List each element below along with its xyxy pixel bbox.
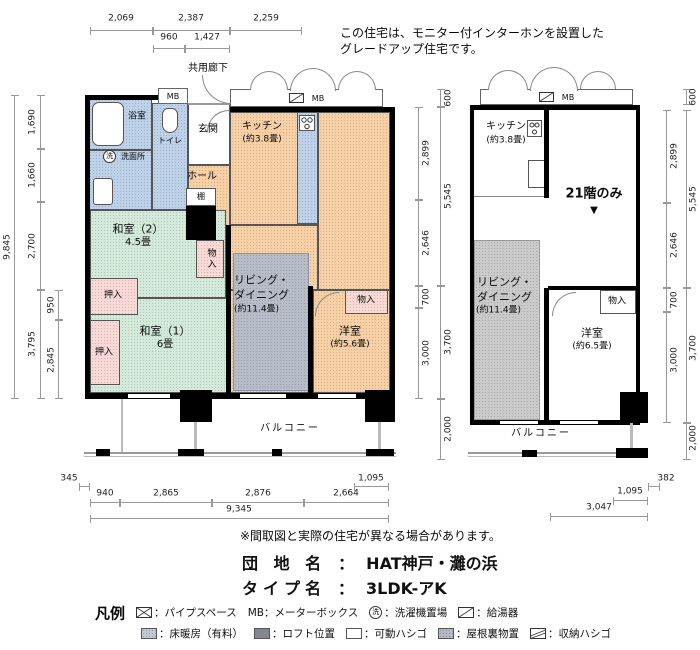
toilet-label: トイレ xyxy=(158,137,182,145)
window xyxy=(500,421,538,424)
storage-western-label: 物入 xyxy=(357,297,375,306)
western-label-left: 洋室 xyxy=(339,326,361,337)
dim-line xyxy=(418,200,419,286)
dim-right-4: 3,000 xyxy=(671,347,680,373)
dim-mid-o2: 3,700 xyxy=(445,329,454,355)
pipe-space-icon xyxy=(539,92,554,102)
wall xyxy=(470,420,640,425)
dim-line xyxy=(304,502,389,503)
dim-line xyxy=(120,502,212,503)
pipe-space-icon xyxy=(289,93,304,103)
wall xyxy=(85,95,90,399)
meter-box-strip-right: MB xyxy=(480,89,633,105)
dim-bl-4: 2,664 xyxy=(333,490,359,499)
storage-ladder-icon xyxy=(530,628,546,639)
dim-line xyxy=(648,486,660,487)
dim-line xyxy=(14,95,15,399)
dim-line xyxy=(90,502,120,503)
dim-line xyxy=(212,502,304,503)
dim-br-sub: 1,095 xyxy=(617,488,643,497)
disclaimer-note: ※間取図と実際の住宅が異なる場合があります。 xyxy=(240,530,501,542)
dim-mid-3: 700 xyxy=(423,288,432,305)
washer-circle-icon: 洗 xyxy=(103,150,116,163)
door-arc xyxy=(580,71,616,89)
hall-label: ホール xyxy=(187,172,217,182)
storage-label-right: 物入 xyxy=(608,298,626,307)
dim-top-4: 960 xyxy=(160,34,177,43)
kitchen-counter-right xyxy=(528,160,545,188)
wall xyxy=(390,112,395,399)
legend-item-pipe-space: ：パイプスペース xyxy=(136,605,237,620)
legend-item-meter-box: MB：メーターボックス xyxy=(248,605,358,620)
bath-label: 浴室 xyxy=(128,113,146,122)
dim-mid-2: 2,646 xyxy=(423,230,432,256)
kitchen-label-right: キッチン xyxy=(486,122,526,132)
type-name-separator: ： xyxy=(338,575,354,599)
legend-item-movable-ladder: ：可動ハシゴ xyxy=(346,626,427,641)
wall xyxy=(308,286,313,395)
estate-name-separator: ： xyxy=(338,550,354,574)
rail-block xyxy=(178,449,204,456)
floor-heating-swatch-icon xyxy=(141,628,157,639)
kitchen-size-left: (約3.8畳) xyxy=(242,136,281,145)
type-name-label: タイプ名 xyxy=(242,575,326,599)
upgrade-note-line1: この住宅は、モニター付インターホンを設置した xyxy=(340,27,604,39)
stove-icon xyxy=(299,115,315,131)
dim-line xyxy=(40,202,41,290)
legend-item-attic-storage: ：屋根裏物置 xyxy=(438,626,519,641)
window xyxy=(560,421,598,424)
dim-line xyxy=(440,399,441,460)
door-arc xyxy=(290,68,336,91)
meter-box-small: MB xyxy=(158,88,188,104)
dim-line xyxy=(686,110,687,288)
legend-item-washer: 洗 ：洗濯機置場 xyxy=(369,605,447,620)
legend-item-floor-heating: ：床暖房（有料） xyxy=(141,626,243,641)
dim-bl-3: 2,876 xyxy=(245,490,271,499)
duct-shaft xyxy=(186,206,216,240)
dim-mid-mb: 600 xyxy=(445,89,454,106)
pillar xyxy=(620,392,648,423)
dim-top-2: 2,387 xyxy=(178,15,204,24)
door-arc xyxy=(488,70,528,90)
kitchen-size-right: (約3.8畳) xyxy=(486,137,525,146)
dim-br-offset: 382 xyxy=(657,475,674,484)
dim-bl-2: 2,865 xyxy=(153,490,179,499)
dim-mid-balcony: 2,000 xyxy=(445,416,454,442)
dim-left-sub1: 950 xyxy=(48,296,57,313)
pillar xyxy=(180,390,212,422)
dim-left-2: 1,660 xyxy=(29,162,38,188)
dim-line xyxy=(354,486,389,487)
washitsu1-label: 和室（1） xyxy=(140,326,191,337)
washer-space-icon xyxy=(93,178,113,205)
door-arc xyxy=(530,67,578,91)
dim-line xyxy=(666,110,667,203)
balcony-rail xyxy=(84,452,396,454)
floor-note-marker: ▼ xyxy=(590,206,598,216)
wall xyxy=(470,105,474,425)
western-label-right: 洋室 xyxy=(581,328,603,339)
wall xyxy=(226,225,231,395)
door-arc xyxy=(338,71,376,90)
dim-line xyxy=(666,312,667,423)
dim-bl-1: 940 xyxy=(96,490,113,499)
dim-br-total: 3,047 xyxy=(586,504,612,513)
estate-name-label: 団 地 名 xyxy=(242,550,326,574)
dim-line xyxy=(418,107,419,200)
type-name-value: 3LDK-アK xyxy=(366,575,447,599)
dim-line xyxy=(418,308,419,399)
washitsu2-label: 和室（2） xyxy=(113,224,164,235)
dim-left-3: 2,700 xyxy=(29,233,38,259)
loft-swatch-icon xyxy=(254,628,270,639)
meter-box-strip: MB xyxy=(230,89,383,107)
oshiire1-label: 押入 xyxy=(104,292,122,301)
attic-storage-swatch-icon xyxy=(438,628,454,639)
rail-block xyxy=(366,449,394,456)
dim-left-sub2: 2,845 xyxy=(48,347,57,373)
living-label-1-left: リビング・ xyxy=(234,275,289,286)
oshiire2-label: 押入 xyxy=(95,349,113,358)
dim-left-1: 1,690 xyxy=(29,109,38,135)
dim-mid-4: 3,000 xyxy=(423,340,432,366)
western-door-arc-right xyxy=(552,292,576,316)
dim-line xyxy=(440,286,441,399)
dim-top-5: 1,427 xyxy=(194,34,220,43)
dim-bl-offset: 345 xyxy=(60,475,77,484)
legend-item-loft: ：ロフト位置 xyxy=(254,626,335,641)
window xyxy=(128,394,170,398)
wall xyxy=(230,107,395,112)
living-label-2-left: ダイニング xyxy=(234,290,289,301)
dim-right-1: 2,899 xyxy=(671,143,680,169)
wall xyxy=(544,288,549,425)
dim-left-total: 9,845 xyxy=(4,234,13,260)
wall xyxy=(544,105,549,198)
pillar xyxy=(365,390,395,422)
balcony-support xyxy=(378,422,381,452)
dim-right-mb: 600 xyxy=(690,88,699,105)
balcony-label-right: バルコニー xyxy=(511,429,571,439)
dim-left-4: 3,795 xyxy=(29,331,38,357)
stove-icon xyxy=(527,120,542,137)
western-size-right: (約6.5畳) xyxy=(572,343,611,352)
dim-line xyxy=(666,203,667,288)
dim-right-2: 2,646 xyxy=(671,232,680,258)
dim-line xyxy=(90,518,389,519)
balcony-label-left: バルコニー xyxy=(260,424,320,434)
dim-line xyxy=(58,290,59,320)
window xyxy=(318,394,356,398)
pipe-space-icon xyxy=(136,607,152,618)
dim-right-balcony: 2,000 xyxy=(690,425,699,451)
dim-line xyxy=(153,30,230,31)
dim-line xyxy=(440,89,441,107)
kitchen-label-left: キッチン xyxy=(242,122,282,132)
bathtub-icon xyxy=(92,102,124,146)
living-size-left: (約11.4畳) xyxy=(234,306,279,315)
estate-name-row: 団 地 名 ： HAT神戸・灘の浜 xyxy=(242,550,498,574)
rail-block xyxy=(96,449,110,456)
dim-line xyxy=(230,30,302,31)
dim-line xyxy=(418,286,419,308)
dim-line xyxy=(666,288,667,312)
upgrade-note-line2: グレードアップ住宅です。 xyxy=(340,43,483,55)
dim-line xyxy=(40,149,41,202)
dim-bl-total: 9,345 xyxy=(226,506,252,515)
dim-line xyxy=(686,288,687,423)
entrance-label: 玄関 xyxy=(198,125,218,135)
water-heater-icon xyxy=(458,607,474,618)
living-label-2-right: ダイニング xyxy=(477,292,532,303)
dim-mid-o1: 5,545 xyxy=(445,183,454,209)
legend-title: 凡例 xyxy=(95,607,125,622)
dim-line xyxy=(90,30,153,31)
dim-line xyxy=(686,423,687,460)
dim-line xyxy=(40,290,41,399)
dim-right-o2: 3,700 xyxy=(690,335,699,361)
dim-line xyxy=(440,107,441,286)
toilet-fixture-icon xyxy=(162,108,178,133)
dim-line xyxy=(185,48,230,49)
washer-circle-icon: 洗 xyxy=(369,606,382,619)
floorplan-page: この住宅は、モニター付インターホンを設置した グレードアップ住宅です。 共用廊下… xyxy=(0,0,700,650)
wall xyxy=(636,105,640,425)
dim-line xyxy=(613,500,648,501)
dim-top-3: 2,259 xyxy=(253,15,279,24)
wall xyxy=(470,105,640,110)
dim-line xyxy=(550,516,648,517)
floor-heating-area-right xyxy=(474,240,540,420)
estate-name-value: HAT神戸・灘の浜 xyxy=(366,550,497,574)
dim-right-o1: 5,545 xyxy=(690,186,699,212)
washroom-label: 洗面所 xyxy=(121,153,145,161)
entrance-door-arc xyxy=(202,75,231,104)
legend-item-storage-ladder: ：収納ハシゴ xyxy=(530,626,611,641)
living-size-right: (約11.4畳) xyxy=(476,307,521,316)
dim-bl-sub: 1,095 xyxy=(358,475,384,484)
movable-ladder-swatch-icon xyxy=(346,628,362,639)
type-name-row: タイプ名 ： 3LDK-アK xyxy=(242,575,447,599)
room-dining-right xyxy=(318,112,390,290)
balcony-support xyxy=(194,422,197,452)
shelf-label: 棚 xyxy=(197,193,205,201)
dim-line xyxy=(686,89,687,105)
washitsu2-size: 4.5畳 xyxy=(125,238,151,248)
floor-note-label: 21階のみ xyxy=(565,188,622,201)
corridor-label: 共用廊下 xyxy=(188,64,228,74)
living-label-1-right: リビング・ xyxy=(477,277,532,288)
dim-mid-1: 2,899 xyxy=(423,140,432,166)
balcony-rail xyxy=(84,456,396,457)
legend-item-water-heater: ：給湯器 xyxy=(458,605,518,620)
legend-row-2: ：床暖房（有料） ：ロフト位置 ：可動ハシゴ ：屋根裏物置 ：収納ハシゴ xyxy=(141,626,611,641)
rail-block xyxy=(522,450,537,457)
rail-block xyxy=(272,449,282,456)
door-arc xyxy=(250,71,288,90)
wall xyxy=(548,286,640,290)
dim-line xyxy=(79,486,90,487)
storage-upper-label: 物入 xyxy=(206,248,215,270)
balcony-side xyxy=(121,399,123,452)
dim-right-3: 700 xyxy=(671,291,680,308)
kitchen-edge xyxy=(474,196,544,197)
dim-top-1: 2,069 xyxy=(108,15,134,24)
dim-line xyxy=(153,48,185,49)
dim-line xyxy=(40,95,41,149)
wall xyxy=(85,95,163,100)
washitsu1-size: 6畳 xyxy=(157,340,173,350)
window xyxy=(240,394,286,398)
rail-block xyxy=(616,448,648,458)
western-size-left: (約5.6畳) xyxy=(330,341,369,350)
dim-line xyxy=(58,320,59,399)
legend-row-1: ：パイプスペース MB：メーターボックス 洗 ：洗濯機置場 ：給湯器 xyxy=(136,605,518,620)
